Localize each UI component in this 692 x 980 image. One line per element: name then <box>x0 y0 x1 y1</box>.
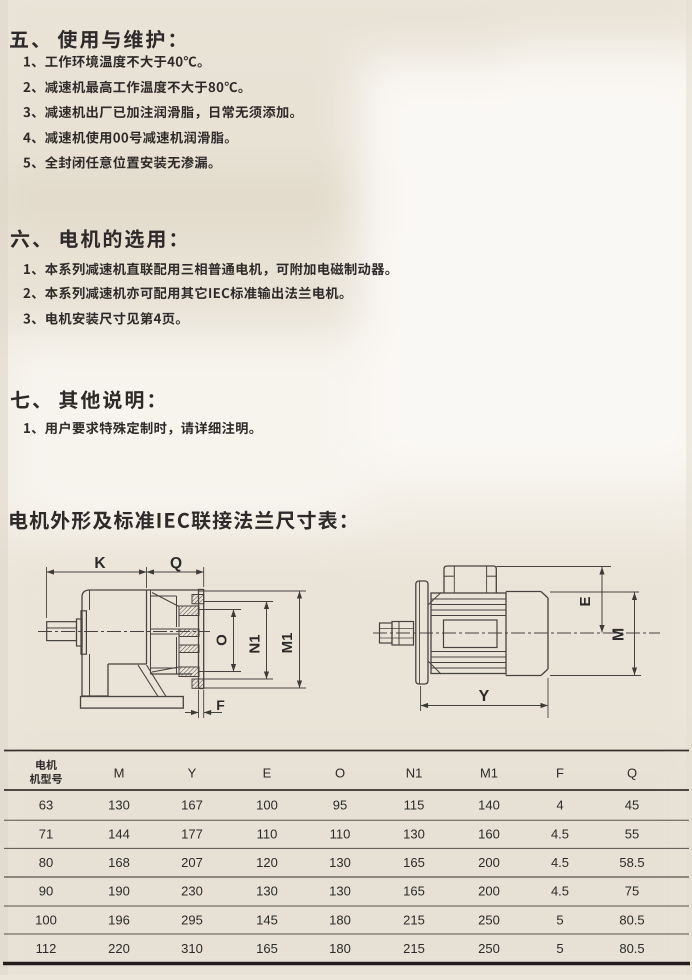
svg-text:N1: N1 <box>406 766 423 781</box>
svg-text:130: 130 <box>329 855 351 870</box>
svg-text:Y: Y <box>188 766 197 781</box>
svg-text:250: 250 <box>478 913 500 928</box>
svg-text:130: 130 <box>108 798 130 813</box>
svg-text:100: 100 <box>35 913 57 928</box>
svg-text:90: 90 <box>39 884 53 899</box>
svg-text:E: E <box>263 766 272 781</box>
svg-text:230: 230 <box>181 884 203 899</box>
svg-text:110: 110 <box>330 827 351 842</box>
svg-text:190: 190 <box>108 884 130 899</box>
svg-text:120: 120 <box>256 855 278 870</box>
svg-text:K: K <box>94 555 106 572</box>
svg-text:80.5: 80.5 <box>619 913 644 928</box>
svg-text:200: 200 <box>478 855 500 870</box>
svg-text:144: 144 <box>108 827 130 842</box>
svg-text:E: E <box>577 596 594 606</box>
svg-text:M: M <box>114 766 125 781</box>
svg-text:Q: Q <box>170 555 182 572</box>
svg-text:130: 130 <box>403 827 425 842</box>
svg-text:5: 5 <box>556 941 563 956</box>
svg-text:M1: M1 <box>279 633 296 654</box>
svg-text:100: 100 <box>256 798 278 813</box>
svg-text:145: 145 <box>256 913 278 928</box>
svg-text:4: 4 <box>556 798 563 813</box>
svg-text:160: 160 <box>478 827 500 842</box>
svg-text:165: 165 <box>403 884 425 899</box>
svg-text:58.5: 58.5 <box>619 855 644 870</box>
svg-text:45: 45 <box>625 798 639 813</box>
svg-text:310: 310 <box>181 941 203 956</box>
svg-text:80: 80 <box>39 855 53 870</box>
svg-text:Y: Y <box>479 688 490 705</box>
svg-text:130: 130 <box>329 884 351 899</box>
svg-text:55: 55 <box>625 827 639 842</box>
svg-text:O: O <box>335 766 345 781</box>
svg-text:80.5: 80.5 <box>619 941 644 956</box>
svg-text:165: 165 <box>403 855 425 870</box>
svg-text:165: 165 <box>256 941 278 956</box>
svg-text:63: 63 <box>39 798 53 813</box>
svg-text:220: 220 <box>108 941 130 956</box>
svg-text:207: 207 <box>181 855 203 870</box>
svg-text:167: 167 <box>181 798 203 813</box>
svg-text:180: 180 <box>329 913 351 928</box>
svg-text:4.5: 4.5 <box>551 884 569 899</box>
svg-text:71: 71 <box>39 827 53 842</box>
svg-text:F: F <box>556 766 564 781</box>
svg-text:95: 95 <box>333 798 347 813</box>
svg-text:115: 115 <box>404 798 425 813</box>
svg-text:4.5: 4.5 <box>551 855 569 870</box>
svg-text:130: 130 <box>256 884 278 899</box>
svg-text:215: 215 <box>403 913 425 928</box>
svg-text:Q: Q <box>627 766 637 781</box>
svg-text:110: 110 <box>257 827 278 842</box>
svg-text:M1: M1 <box>480 766 498 781</box>
svg-text:250: 250 <box>478 941 500 956</box>
svg-text:196: 196 <box>108 913 130 928</box>
svg-text:N1: N1 <box>247 634 264 653</box>
svg-text:215: 215 <box>403 941 425 956</box>
svg-text:180: 180 <box>329 941 351 956</box>
svg-text:5: 5 <box>556 913 563 928</box>
svg-text:168: 168 <box>108 855 130 870</box>
svg-text:O: O <box>214 634 231 646</box>
svg-text:295: 295 <box>181 913 203 928</box>
svg-text:200: 200 <box>478 884 500 899</box>
svg-text:177: 177 <box>181 827 203 842</box>
svg-text:F: F <box>216 697 225 713</box>
svg-text:112: 112 <box>36 941 57 956</box>
svg-text:4.5: 4.5 <box>551 827 569 842</box>
svg-text:75: 75 <box>625 884 639 899</box>
svg-text:M: M <box>611 628 628 641</box>
svg-text:140: 140 <box>478 798 500 813</box>
